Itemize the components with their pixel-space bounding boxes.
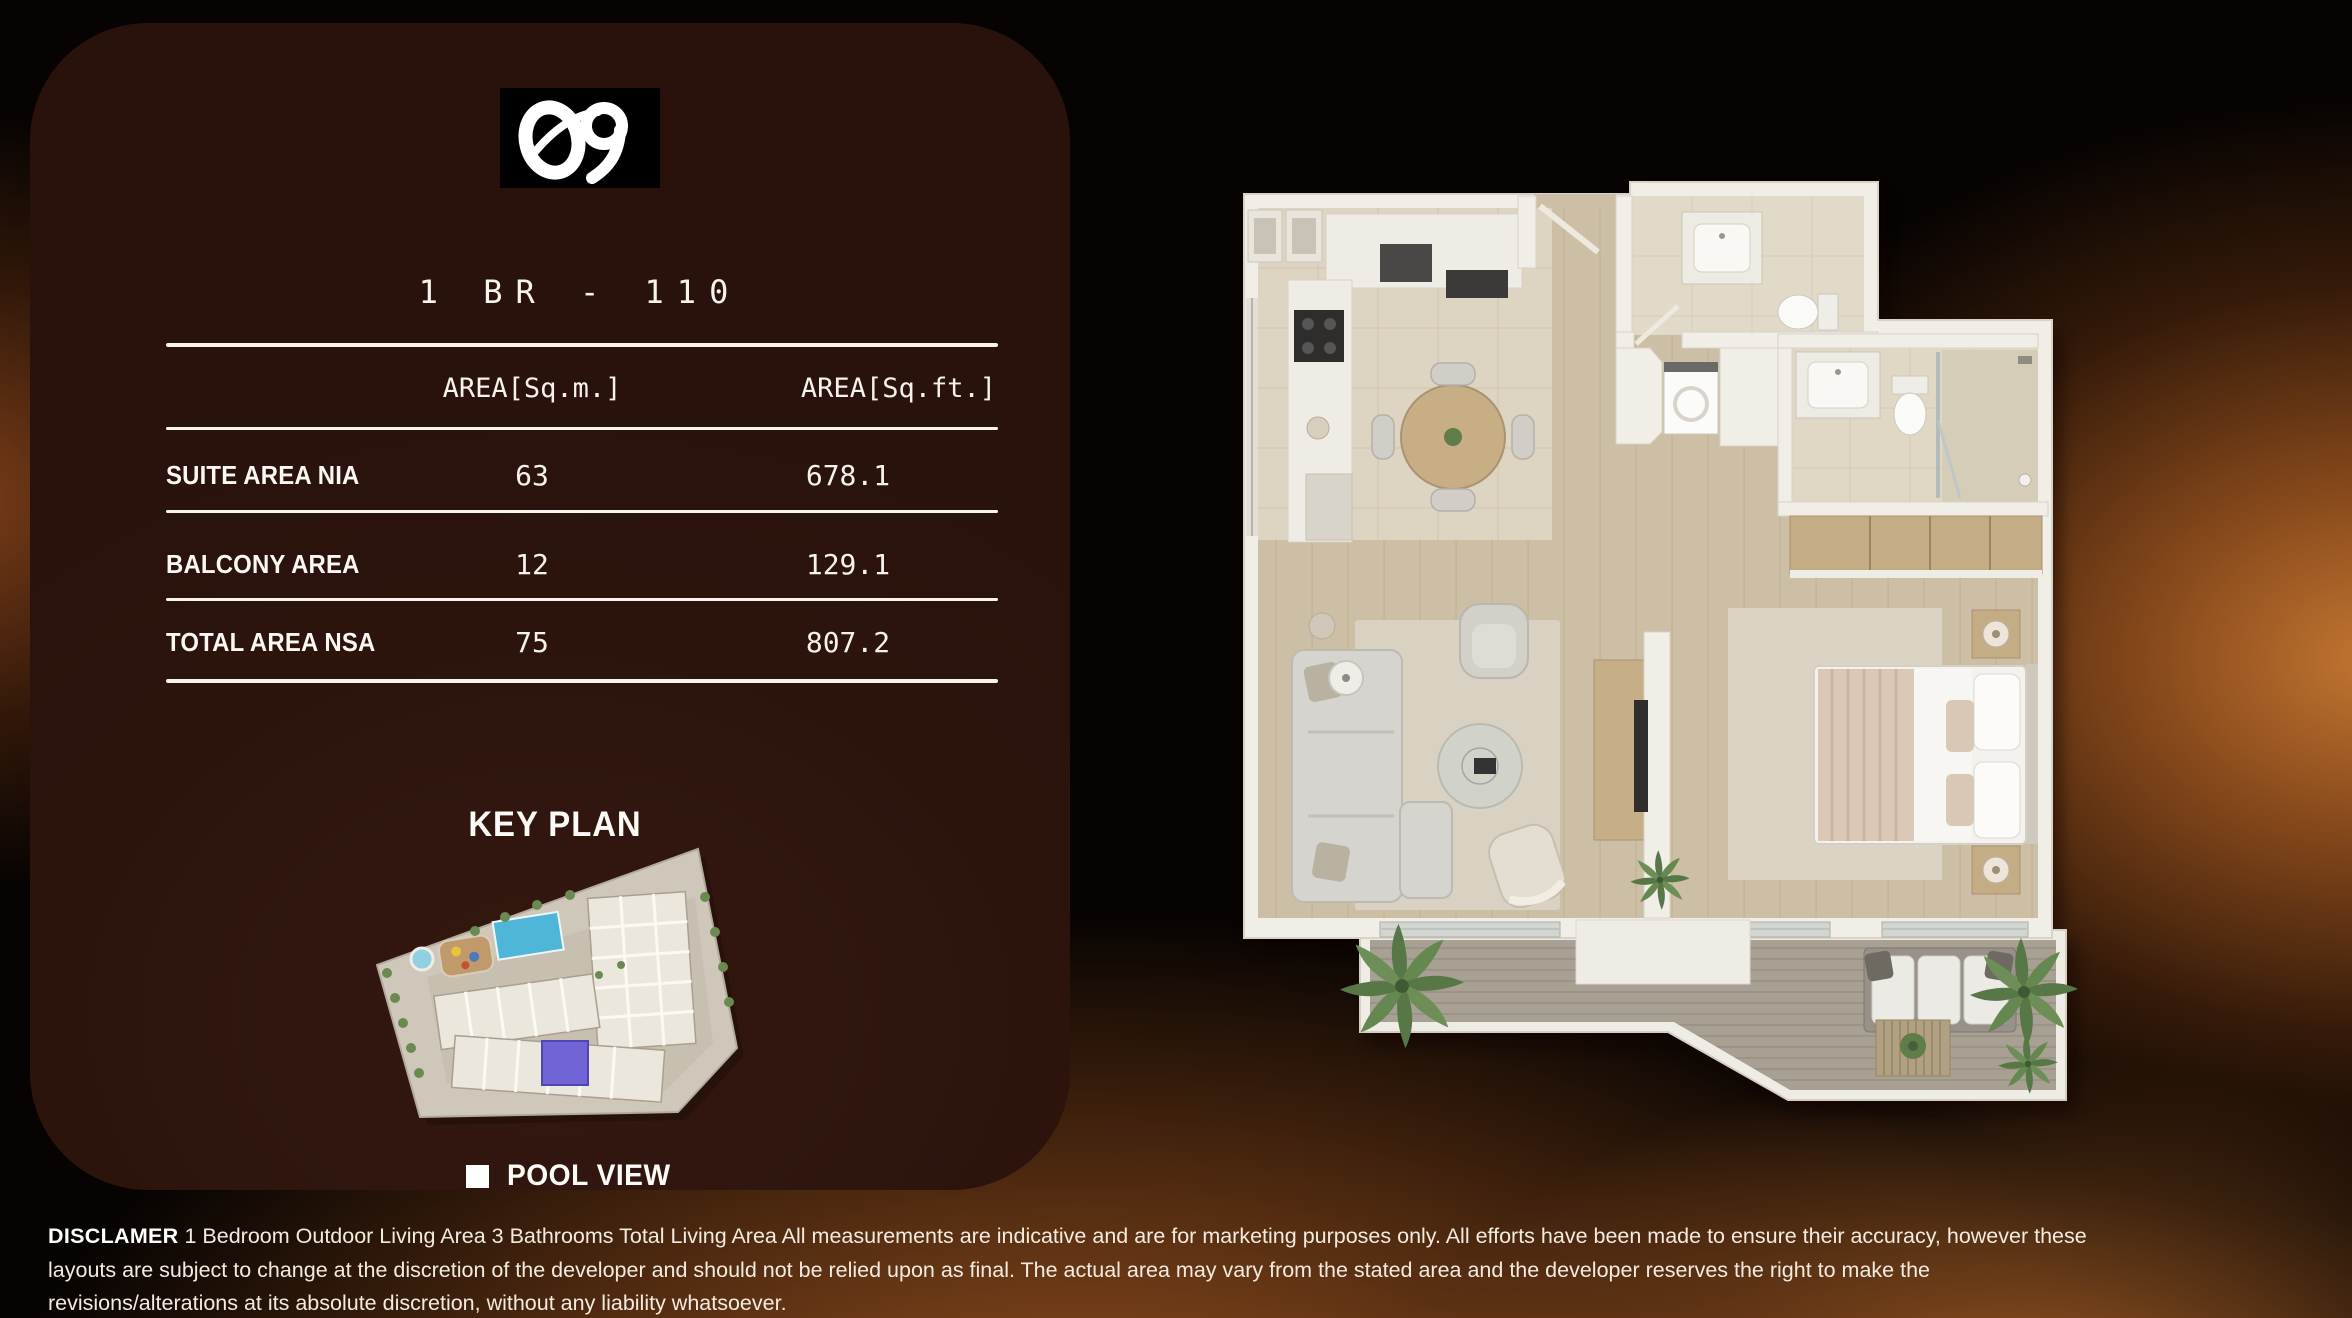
shower [1938, 350, 2038, 502]
disclaimer-label: DISCLAMER [48, 1224, 179, 1248]
table-header-row: AREA[Sq.m.] AREA[Sq.ft.] [166, 361, 998, 415]
nightstand [1972, 846, 2020, 894]
bathroom-1 [1616, 196, 1878, 348]
table-row: BALCONY AREA 12 129.1 [166, 537, 998, 591]
table-rule [166, 598, 998, 601]
bed [1814, 664, 2038, 844]
view-legend: POOL VIEW [466, 1159, 681, 1193]
bedroom [1728, 608, 2038, 894]
floor-plan-slide: 1 BR - 110 AREA[Sq.m.] AREA[Sq.ft.] SUIT… [0, 0, 2352, 1318]
disclaimer-line: layouts are subject to change at the dis… [48, 1254, 2338, 1288]
disclaimer-line: revisions/alterations at its absolute di… [48, 1287, 2338, 1318]
balcony-step [1576, 920, 1750, 984]
unit-title: 1 BR - 110 [360, 273, 800, 311]
key-plan-image [365, 835, 755, 1127]
kitchen-sink [1380, 244, 1432, 282]
row-label: TOTAL AREA NSA [166, 627, 383, 658]
side-table [1309, 613, 1335, 639]
disclaimer: DISCLAMER 1 Bedroom Outdoor Living Area … [48, 1220, 2338, 1318]
legend-label: POOL VIEW [507, 1159, 671, 1193]
washing-machine [1664, 362, 1718, 434]
table-row: TOTAL AREA NSA 75 807.2 [166, 615, 998, 669]
row-sqft: 129.1 [654, 548, 998, 581]
nightstand [1972, 610, 2020, 658]
key-plan-selected-unit [542, 1041, 588, 1085]
kitchen-cooktop [1294, 310, 1344, 362]
brand-logo [500, 88, 660, 188]
pool-view-marker-icon [466, 1165, 489, 1188]
armchair [1460, 604, 1528, 678]
row-sqm: 75 [402, 626, 654, 659]
bathroom-2 [1778, 334, 2038, 502]
headboard [2026, 664, 2038, 844]
table-rule [166, 427, 998, 430]
bathroom-2-toilet [1892, 376, 1928, 435]
row-sqft: 807.2 [654, 626, 998, 659]
row-sqft: 678.1 [654, 459, 998, 492]
laundry-closet [1616, 348, 1778, 446]
outdoor-table [1876, 1020, 1950, 1076]
table-row: SUITE AREA NIA 63 678.1 [166, 448, 998, 502]
info-panel: 1 BR - 110 AREA[Sq.m.] AREA[Sq.ft.] SUIT… [30, 23, 1070, 1190]
table-rule [166, 343, 998, 347]
wardrobe [1778, 502, 2048, 578]
logo-09-icon [500, 88, 660, 188]
col-header-sqft: AREA[Sq.ft.] [654, 373, 998, 404]
kitchen-oven [1446, 270, 1508, 298]
row-sqm: 63 [402, 459, 654, 492]
row-label: BALCONY AREA [166, 549, 383, 580]
floor-plan-image [1230, 180, 2110, 1180]
row-label: SUITE AREA NIA [166, 460, 383, 491]
kitchen-bowl [1307, 417, 1329, 439]
bathroom-1-toilet [1778, 294, 1838, 330]
table-rule [166, 679, 998, 683]
bathroom-1-vanity [1682, 212, 1762, 284]
row-sqm: 12 [402, 548, 654, 581]
bathroom-2-vanity [1796, 352, 1880, 418]
col-header-sqm: AREA[Sq.m.] [402, 373, 654, 404]
table-rule [166, 510, 998, 513]
coffee-table [1438, 724, 1522, 808]
tv [1634, 700, 1648, 812]
disclaimer-line: DISCLAMER 1 Bedroom Outdoor Living Area … [48, 1220, 2338, 1254]
key-plan-kids-area [438, 934, 495, 978]
key-plan-round-pool [411, 948, 433, 970]
